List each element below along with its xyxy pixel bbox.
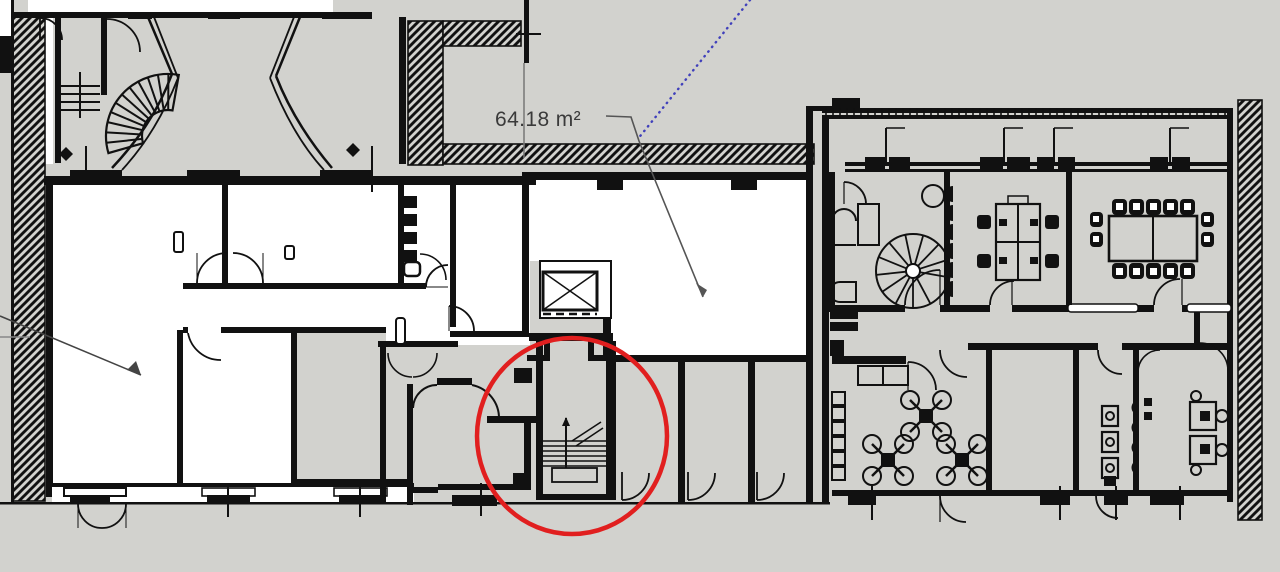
svg-text:64.18 m²: 64.18 m² [495,108,581,131]
